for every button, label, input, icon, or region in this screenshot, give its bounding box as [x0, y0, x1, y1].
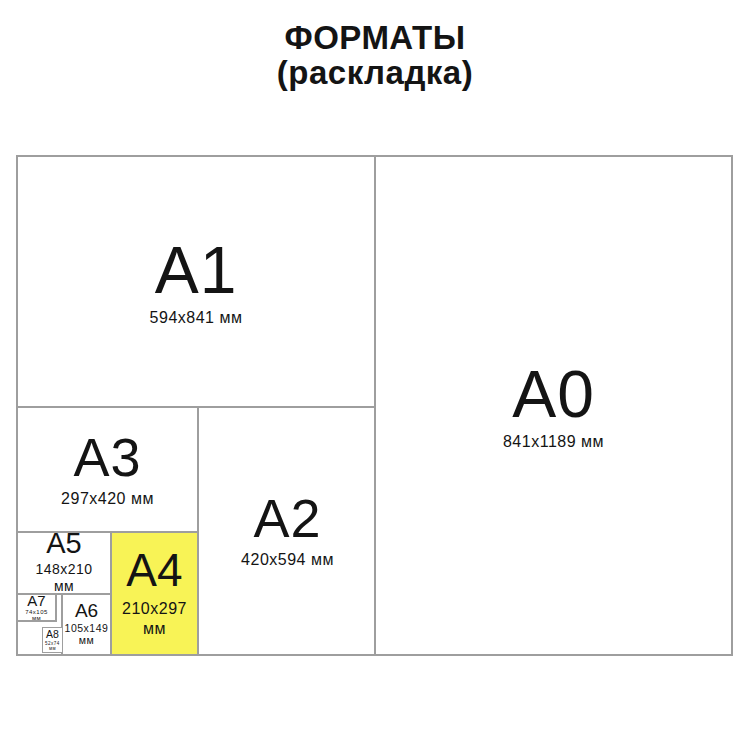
- page-title: ФОРМАТЫ (раскладка): [0, 20, 750, 90]
- format-a7-unit: мм: [32, 615, 41, 621]
- format-a1-dims: 594x841 мм: [150, 309, 243, 327]
- format-a6-unit: мм: [79, 634, 94, 646]
- format-a8-unit: мм: [49, 646, 56, 651]
- format-a3-dims: 297x420 мм: [61, 490, 154, 508]
- format-a6-region: A6 105x149 мм: [63, 593, 110, 654]
- format-a1-label: A1: [155, 237, 238, 303]
- divider-a7-right: [55, 593, 57, 622]
- format-a4-region: A4 210x297 мм: [112, 531, 197, 654]
- format-a7-label: A7: [27, 593, 45, 608]
- format-a7-region: A7 74x105 мм: [18, 593, 55, 620]
- formats-diagram: A1 594x841 мм A0 841x1189 мм A3 297x420 …: [16, 155, 733, 656]
- page-title-line2: (раскладка): [0, 55, 750, 90]
- format-a6-label: A6: [75, 601, 98, 620]
- page-title-line1: ФОРМАТЫ: [0, 20, 750, 55]
- format-a2-label: A2: [253, 491, 321, 545]
- format-a4-label: A4: [126, 547, 182, 593]
- format-a3-label: A3: [73, 430, 141, 484]
- format-a5-label: A5: [46, 529, 81, 558]
- format-a2-region: A2 420x594 мм: [199, 406, 376, 654]
- format-a8-region: A8 52x74 мм: [42, 627, 63, 653]
- format-a1-region: A1 594x841 мм: [18, 157, 374, 406]
- format-a3-region: A3 297x420 мм: [18, 406, 197, 531]
- format-a4-dims: 210x297: [122, 599, 187, 619]
- format-a0-dims: 841x1189 мм: [503, 433, 604, 451]
- format-a4-unit: мм: [143, 619, 166, 639]
- format-a5-dims: 148x210: [35, 561, 92, 578]
- format-a8-label: A8: [46, 629, 59, 640]
- format-a0-label: A0: [512, 361, 595, 427]
- format-a2-dims: 420x594 мм: [241, 551, 334, 569]
- format-a6-dims: 105x149: [65, 622, 109, 634]
- format-a5-region: A5 148x210 мм: [18, 531, 110, 593]
- format-a0-region: A0 841x1189 мм: [376, 157, 731, 654]
